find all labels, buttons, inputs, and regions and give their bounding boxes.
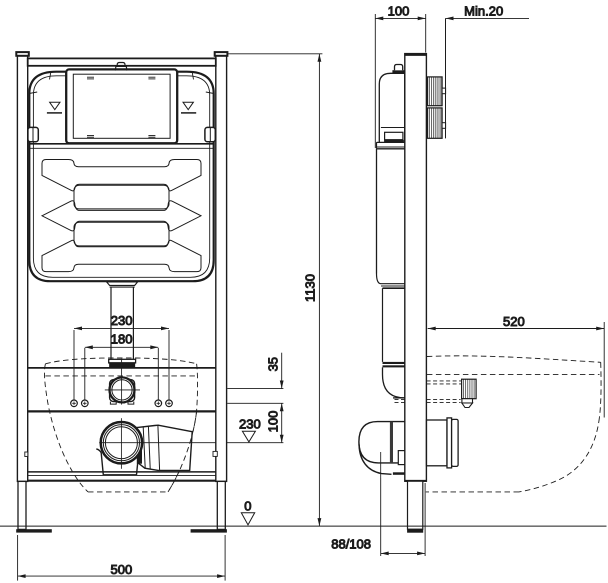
svg-text:100: 100 — [266, 411, 281, 433]
svg-text:500: 500 — [111, 562, 133, 577]
svg-text:520: 520 — [503, 314, 525, 329]
svg-text:100: 100 — [388, 3, 410, 18]
svg-text:230: 230 — [239, 416, 261, 431]
svg-text:88/108: 88/108 — [331, 536, 371, 551]
svg-text:1130: 1130 — [303, 274, 318, 302]
svg-text:Min.20: Min.20 — [464, 3, 503, 18]
svg-text:0: 0 — [244, 499, 251, 514]
svg-text:35: 35 — [266, 357, 281, 371]
svg-text:230: 230 — [111, 313, 133, 328]
svg-text:180: 180 — [111, 332, 133, 347]
